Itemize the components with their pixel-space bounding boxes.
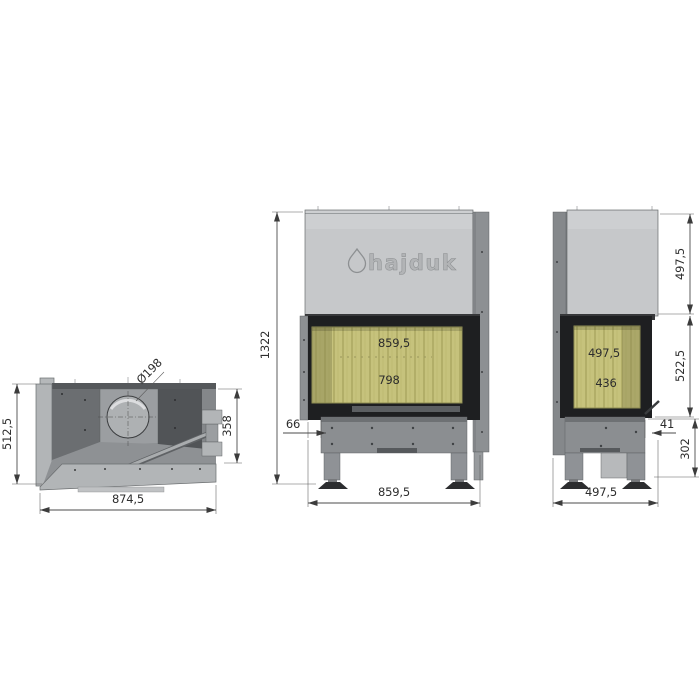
front-left-edge — [300, 316, 308, 420]
side-firebox: 497,5 436 — [560, 316, 659, 418]
dim-label-hood-height: 497,5 — [673, 248, 687, 280]
side-base — [565, 417, 645, 453]
dim-label-overall-depth: 497,5 — [585, 485, 617, 499]
dim-label-top-firebox-depth: 358 — [220, 415, 234, 436]
front-firebox: 859,5 798 — [308, 316, 480, 420]
front-base — [321, 417, 467, 453]
front-view: hajduk 859,5 798 — [258, 206, 489, 507]
dim-label-left-offset: 66 — [286, 417, 300, 431]
front-ash-lip — [352, 406, 460, 412]
side-legs — [560, 453, 652, 489]
top-view-front-frame — [40, 464, 216, 490]
dim-label-base-height: 302 — [678, 438, 692, 459]
front-legs — [318, 453, 475, 489]
front-left-foot — [318, 482, 348, 489]
brand-logo-text: hajduk — [368, 251, 457, 275]
dim-label-top-depth: 512,5 — [0, 418, 14, 450]
dim-label-firebox-height: 522,5 — [673, 350, 687, 382]
side-right-foot — [622, 482, 652, 489]
dim-right-offset: 41 — [645, 417, 676, 438]
dim-hood-height: 497,5 — [658, 214, 694, 314]
side-view: 497,5 436 497,5 — [553, 206, 699, 507]
dim-label-flue-diameter: Ø198 — [134, 356, 165, 387]
dim-label-glass-width: 859,5 — [378, 336, 410, 350]
front-right-foot — [445, 482, 475, 489]
side-hood — [567, 206, 658, 316]
dim-label-total-height: 1322 — [258, 331, 272, 359]
front-hood: hajduk — [305, 206, 473, 316]
top-view-back-panel — [52, 383, 216, 389]
dim-label-glass-opening-width: 798 — [378, 373, 399, 387]
dim-label-overall-width: 859,5 — [378, 485, 410, 499]
dim-firebox-height: 522,5 — [655, 316, 694, 417]
dim-label-top-width: 874,5 — [112, 492, 144, 506]
dim-label-glass-opening-depth: 436 — [595, 376, 616, 390]
top-view: 512,5 874,5 358 Ø198 — [0, 356, 242, 514]
top-view-body — [36, 377, 222, 492]
fireplace-drawing-svg: 512,5 874,5 358 Ø198 — [0, 0, 700, 700]
technical-drawing: 512,5 874,5 358 Ø198 — [0, 0, 700, 700]
dim-label-glass-depth: 497,5 — [588, 346, 620, 360]
